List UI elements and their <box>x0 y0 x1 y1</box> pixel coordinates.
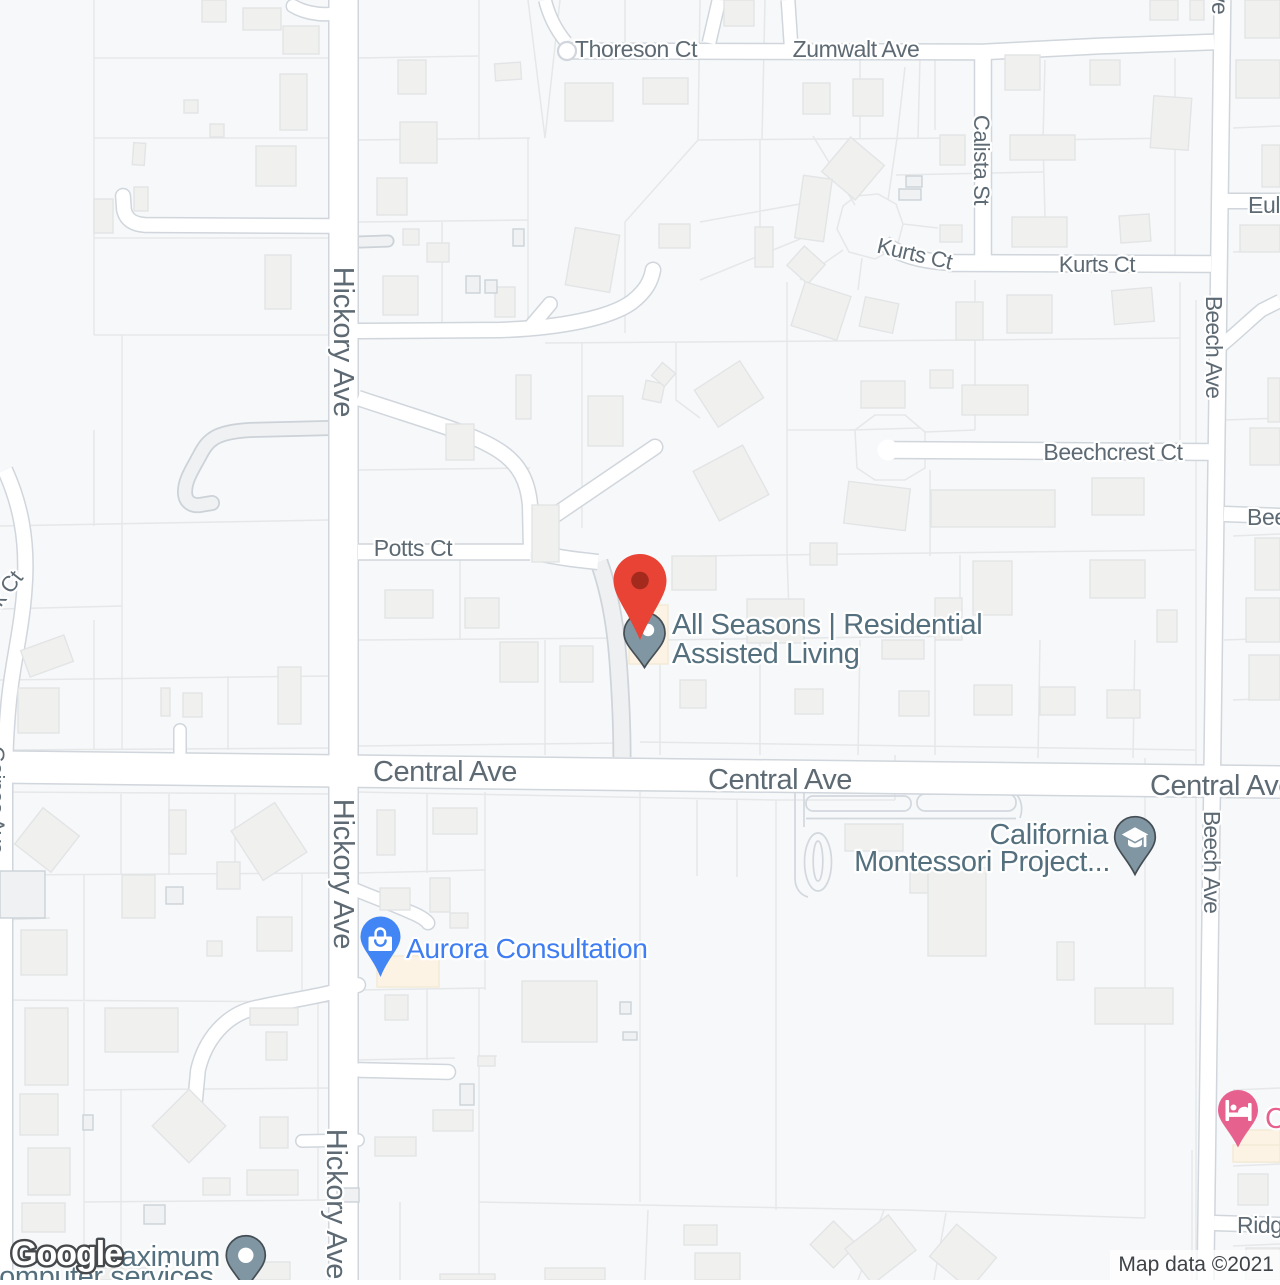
svg-text:Kurts Ct: Kurts Ct <box>1059 252 1136 277</box>
svg-text:Gaines Ave: Gaines Ave <box>0 746 9 854</box>
svg-text:Google: Google <box>11 1235 122 1273</box>
svg-text:Assisted Living: Assisted Living <box>672 638 859 670</box>
svg-text:Ridg: Ridg <box>1237 1212 1280 1238</box>
svg-text:All Seasons | Residential: All Seasons | Residential <box>672 609 982 641</box>
svg-text:Ca: Ca <box>1265 1103 1280 1135</box>
svg-text:Beech Ave: Beech Ave <box>1199 811 1225 913</box>
svg-text:Calista St: Calista St <box>969 115 994 205</box>
svg-text:Beechcrest Ct: Beechcrest Ct <box>1043 439 1183 465</box>
svg-text:Central Ave: Central Ave <box>708 764 852 796</box>
svg-text:Beech Ave: Beech Ave <box>1201 296 1227 398</box>
svg-text:Map data ©2021: Map data ©2021 <box>1118 1253 1274 1276</box>
svg-text:Beech Ave: Beech Ave <box>1207 0 1233 14</box>
svg-text:Eula: Eula <box>1248 192 1280 218</box>
svg-text:Aurora Consultation: Aurora Consultation <box>406 932 648 964</box>
svg-text:Central Ave: Central Ave <box>1150 770 1280 802</box>
svg-text:Hickory Ave: Hickory Ave <box>327 799 359 949</box>
svg-text:Hickory Ave: Hickory Ave <box>320 1129 352 1279</box>
svg-text:Central Ave: Central Ave <box>373 756 517 788</box>
svg-text:Montessori Project...: Montessori Project... <box>854 846 1110 878</box>
svg-text:Bee: Bee <box>1247 504 1280 530</box>
svg-text:Zumwalt Ave: Zumwalt Ave <box>793 36 920 62</box>
svg-text:Potts Ct: Potts Ct <box>374 535 454 561</box>
svg-text:Thoreson Ct: Thoreson Ct <box>575 36 698 62</box>
svg-text:Hickory Ave: Hickory Ave <box>327 267 359 417</box>
